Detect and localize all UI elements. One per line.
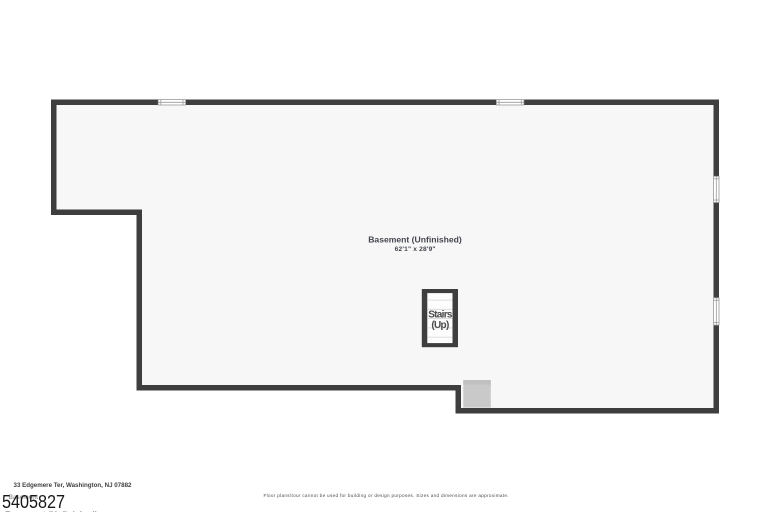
svg-text:62'1" x 28'9": 62'1" x 28'9" xyxy=(395,246,436,253)
svg-text:Basement (Unfinished): Basement (Unfinished) xyxy=(368,235,462,245)
svg-text:(Up): (Up) xyxy=(431,320,449,331)
svg-text:Stairs: Stairs xyxy=(428,310,453,321)
